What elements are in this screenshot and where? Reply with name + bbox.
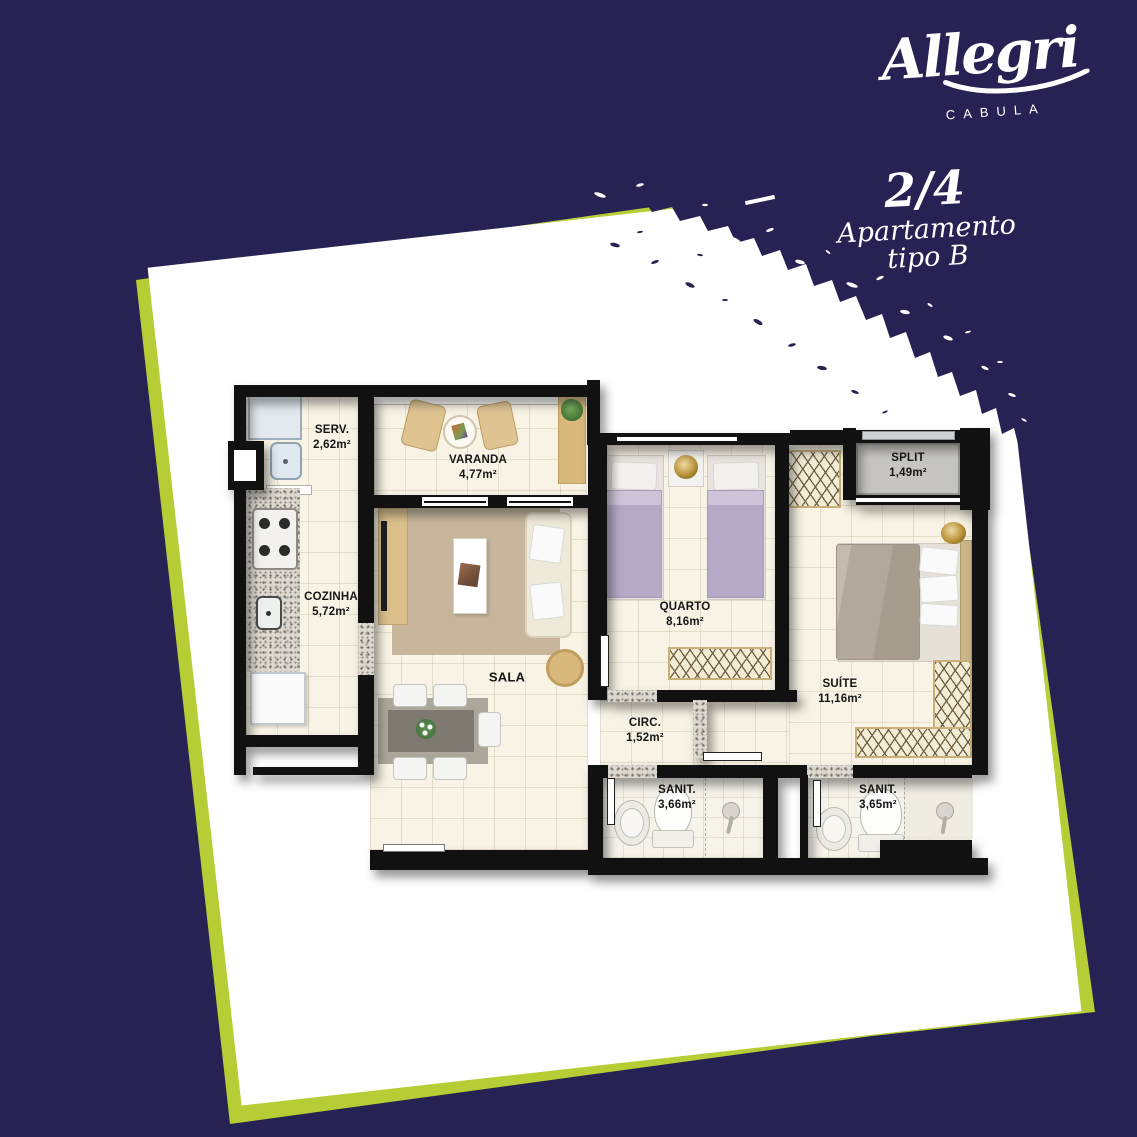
room-label-circ: CIRC.1,52m² <box>626 716 664 746</box>
balcony-rail <box>253 767 368 775</box>
suite-door <box>703 752 762 761</box>
sanit2-threshold <box>807 765 853 778</box>
room-label-split: SPLIT1,49m² <box>889 451 927 481</box>
quarto-window <box>617 436 737 442</box>
sanit1-threshold <box>608 765 657 778</box>
quarto-door <box>600 635 609 687</box>
split-grille <box>862 431 955 440</box>
room-label-suite: SUÍTE11,16m² <box>818 677 862 707</box>
sanit2-door <box>813 780 821 827</box>
unit-type: 2/4 <box>833 161 1015 216</box>
kitchen-door-threshold <box>358 623 374 675</box>
room-label-sanit2: SANIT.3,65m² <box>859 783 897 813</box>
room-label-serv: SERV.2,62m² <box>313 423 351 453</box>
floor-plan: SERV.2,62m² VARANDA4,77m² COZINHA5,72m² … <box>228 378 992 878</box>
split-louver <box>856 495 960 505</box>
room-label-sala: SALA <box>489 670 525 687</box>
sanit1-door <box>607 778 615 825</box>
quarto-door-threshold <box>608 690 657 702</box>
sala-window-sill <box>383 844 445 852</box>
unit-block: 2/4 Apartamento tipo B <box>833 161 1018 277</box>
suite-door-threshold <box>693 700 707 758</box>
room-label-varanda: VARANDA4,77m² <box>449 453 507 483</box>
brand-logo: Allegri CABULA <box>853 17 1109 128</box>
room-label-cozinha: COZINHA5,72m² <box>304 590 358 620</box>
poster: Allegri CABULA 2/4 Apartamento tipo B <box>0 0 1137 1137</box>
room-label-sanit1: SANIT.3,66m² <box>658 783 696 813</box>
room-label-quarto: QUARTO8,16m² <box>660 600 711 630</box>
